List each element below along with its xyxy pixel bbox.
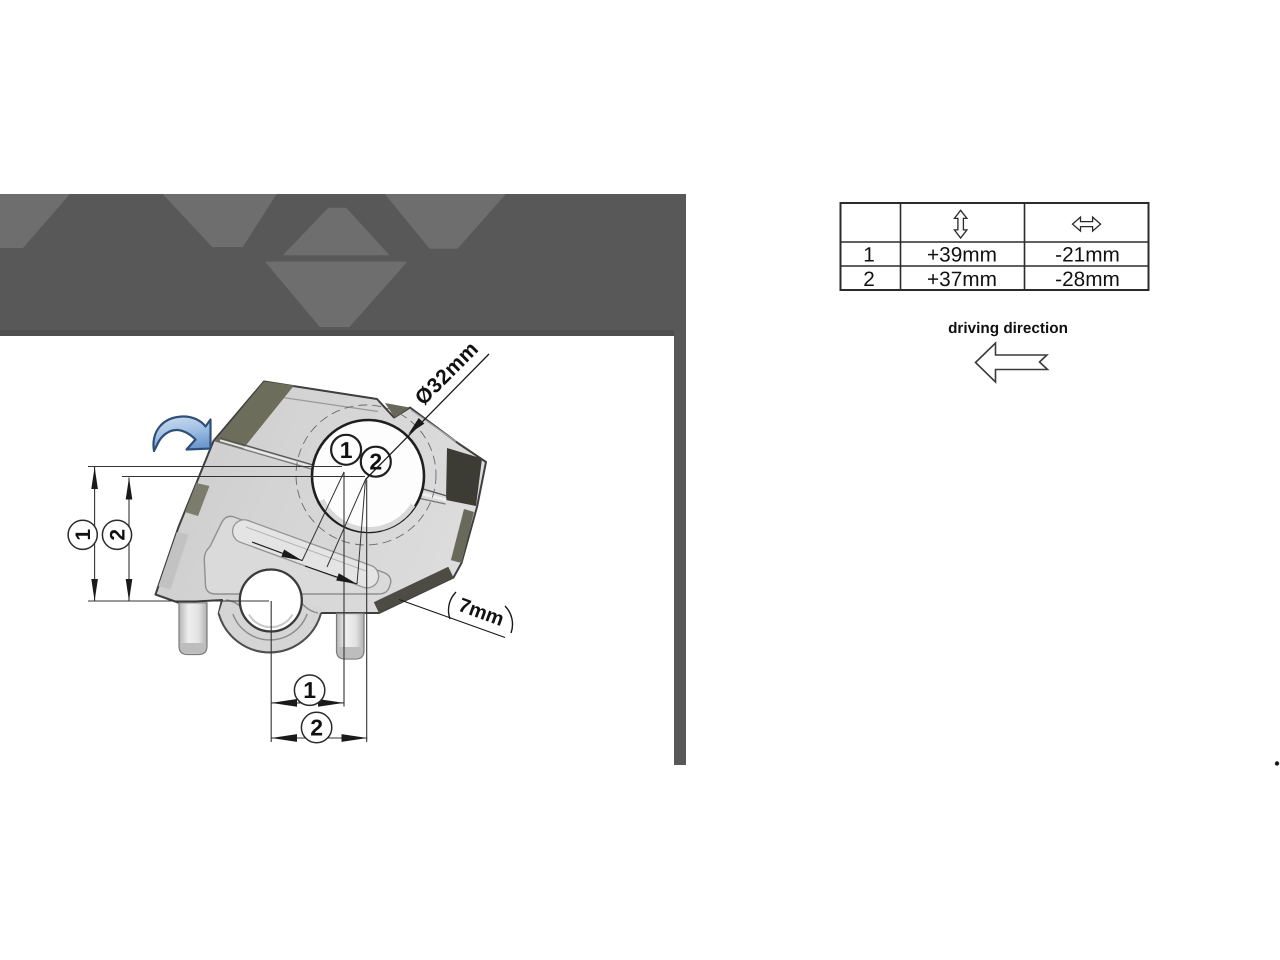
- svg-text:1: 1: [303, 677, 316, 703]
- svg-text:-28mm: -28mm: [1055, 268, 1120, 291]
- svg-text:driving direction: driving direction: [948, 320, 1068, 337]
- svg-text:1: 1: [72, 529, 95, 541]
- svg-text:-21mm: -21mm: [1055, 244, 1120, 267]
- svg-text:+39mm: +39mm: [927, 244, 997, 267]
- svg-text:2: 2: [310, 715, 323, 741]
- svg-text:7mm: 7mm: [455, 594, 506, 631]
- svg-text:1: 1: [340, 437, 353, 463]
- svg-text:2: 2: [863, 268, 875, 291]
- svg-text:2: 2: [107, 529, 130, 541]
- svg-text:2: 2: [369, 449, 382, 475]
- svg-text:Ø32mm: Ø32mm: [411, 337, 484, 410]
- svg-text:1: 1: [863, 244, 875, 267]
- svg-text:+37mm: +37mm: [927, 268, 997, 291]
